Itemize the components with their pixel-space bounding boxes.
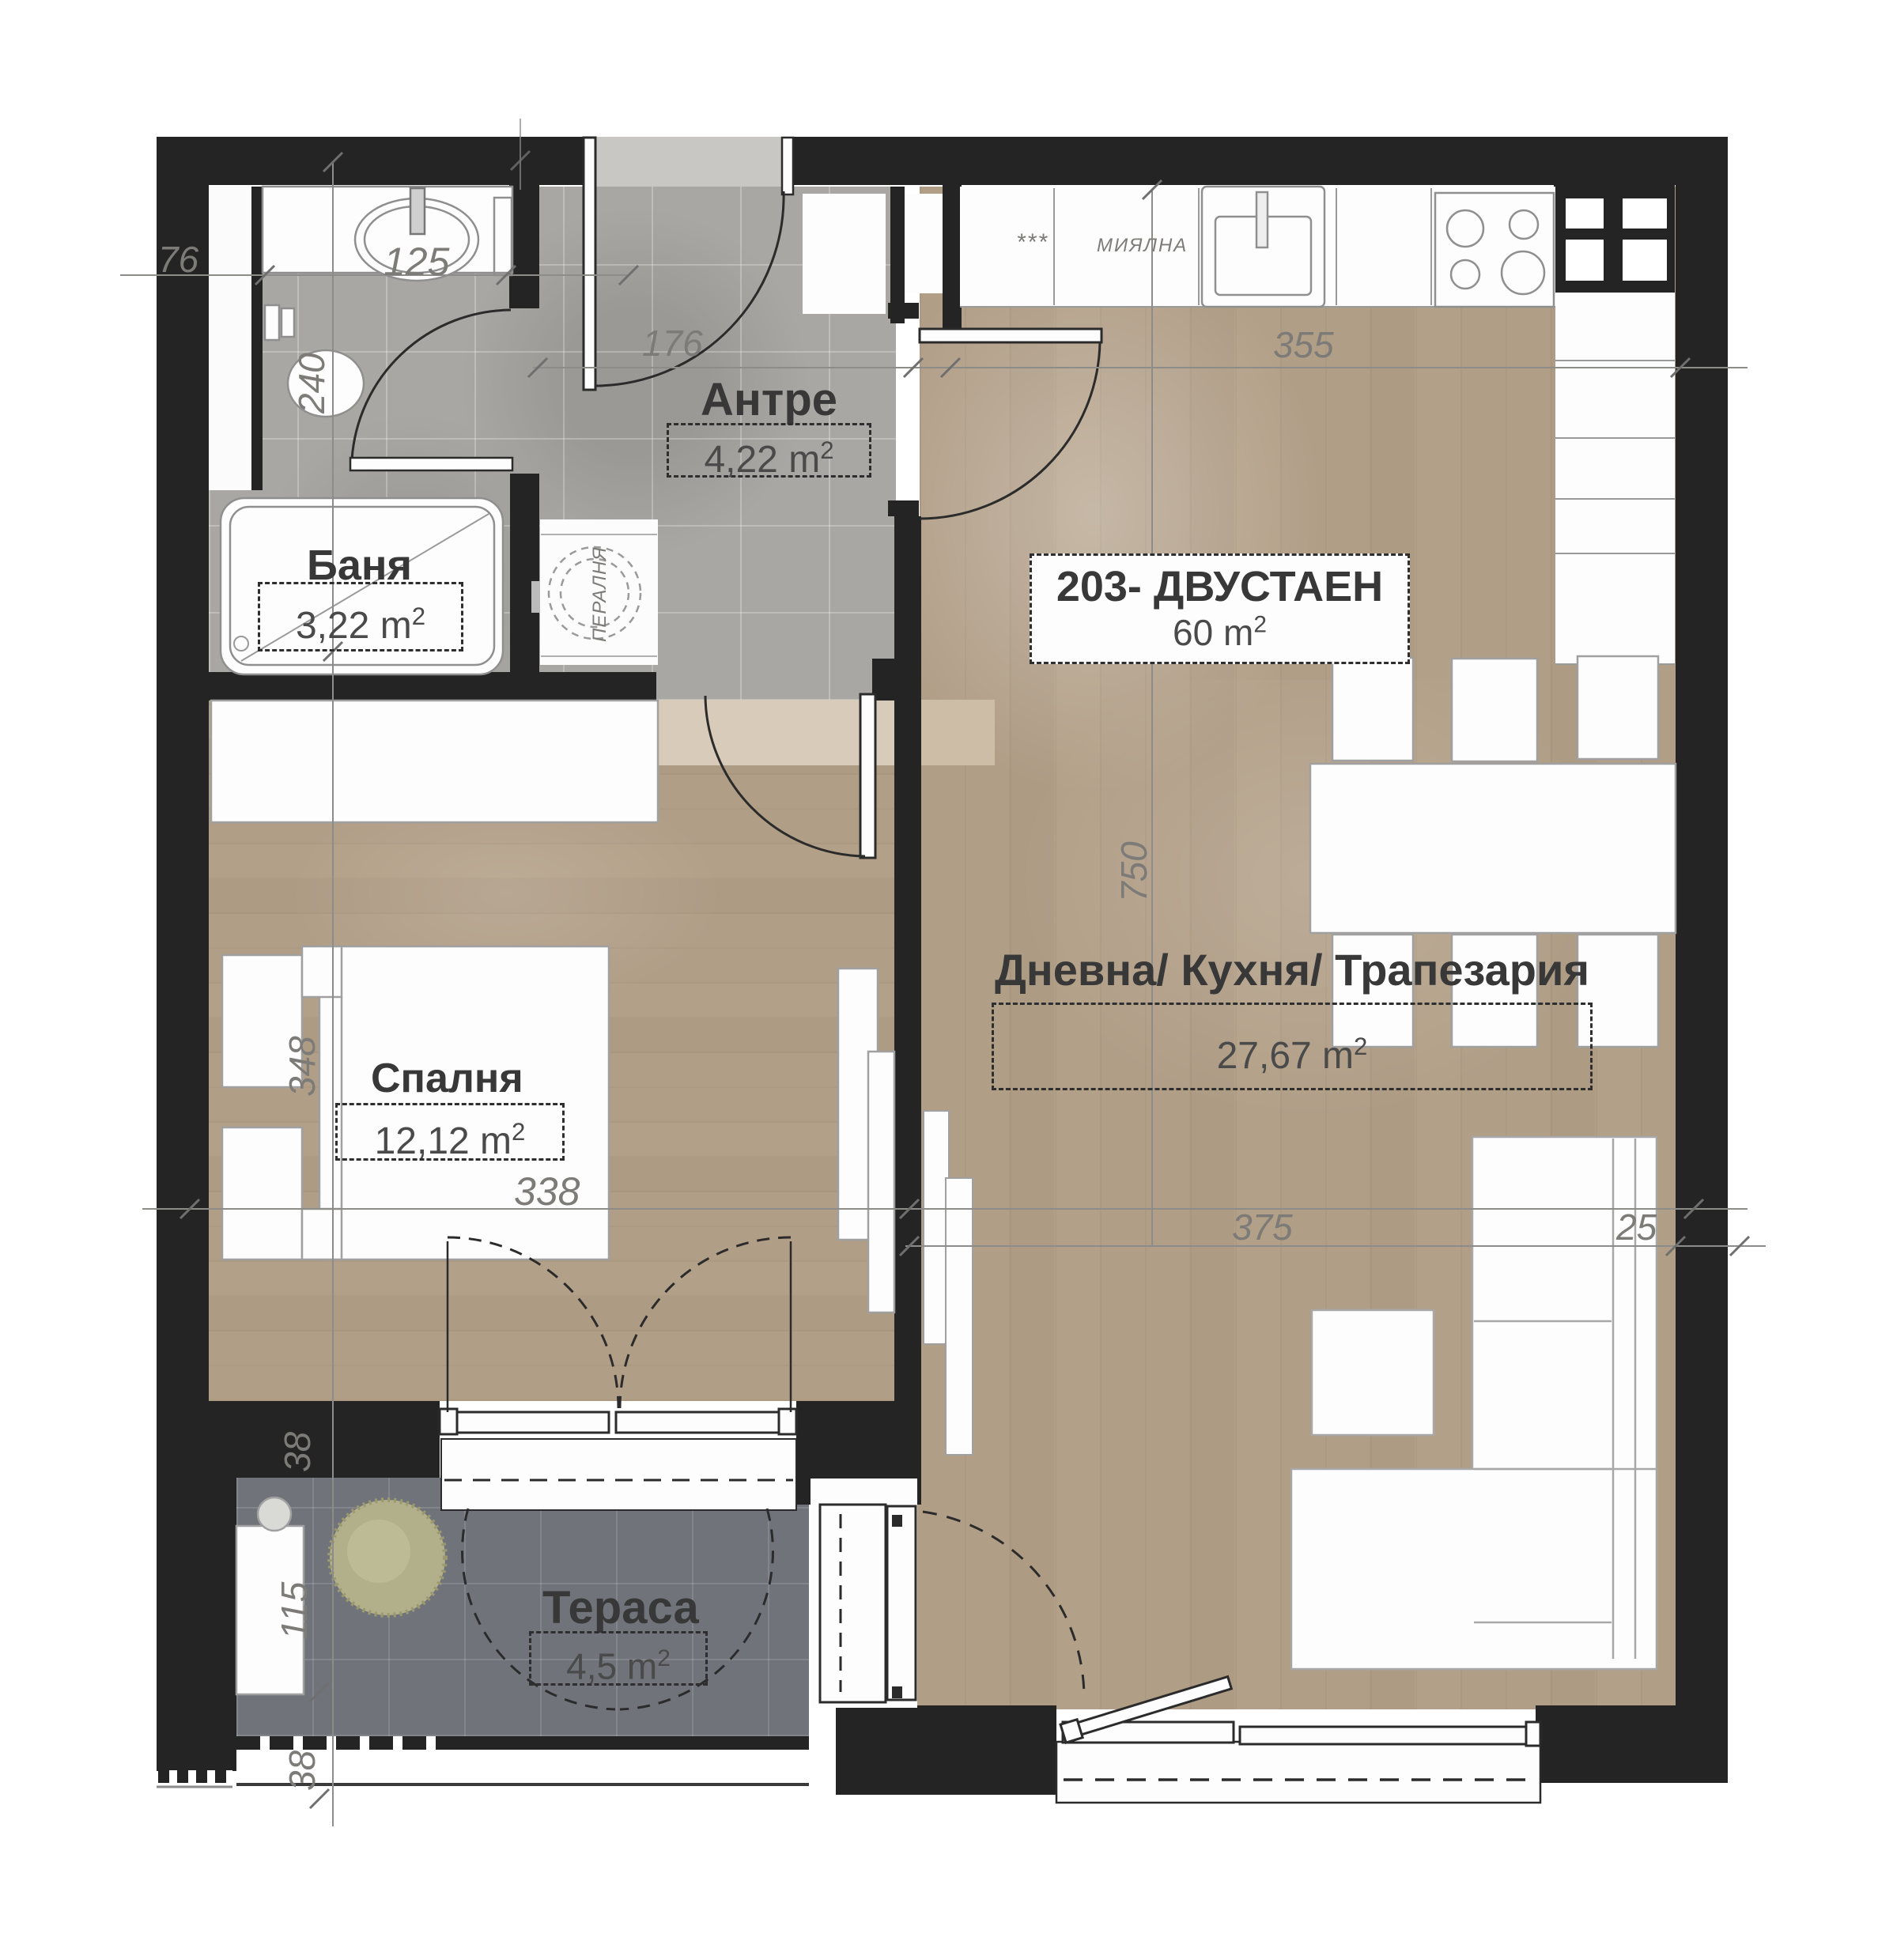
svg-text:ПЕРАЛНЯ: ПЕРАЛНЯ bbox=[589, 546, 610, 642]
svg-text:176: 176 bbox=[642, 323, 703, 364]
svg-text:355: 355 bbox=[1273, 324, 1334, 365]
svg-text:***: *** bbox=[1016, 229, 1049, 255]
svg-text:375: 375 bbox=[1232, 1207, 1293, 1248]
svg-text:348: 348 bbox=[282, 1036, 323, 1097]
svg-text:750: 750 bbox=[1113, 841, 1154, 902]
svg-text:115: 115 bbox=[274, 1581, 315, 1640]
svg-text:38: 38 bbox=[277, 1431, 318, 1472]
svg-text:25: 25 bbox=[1615, 1207, 1657, 1248]
svg-text:МИЯЛНА: МИЯЛНА bbox=[1097, 235, 1188, 256]
svg-text:338: 338 bbox=[514, 1169, 580, 1214]
svg-text:240: 240 bbox=[291, 353, 332, 414]
svg-text:38: 38 bbox=[282, 1750, 323, 1791]
svg-text:125: 125 bbox=[384, 240, 450, 284]
svg-text:76: 76 bbox=[158, 239, 199, 280]
